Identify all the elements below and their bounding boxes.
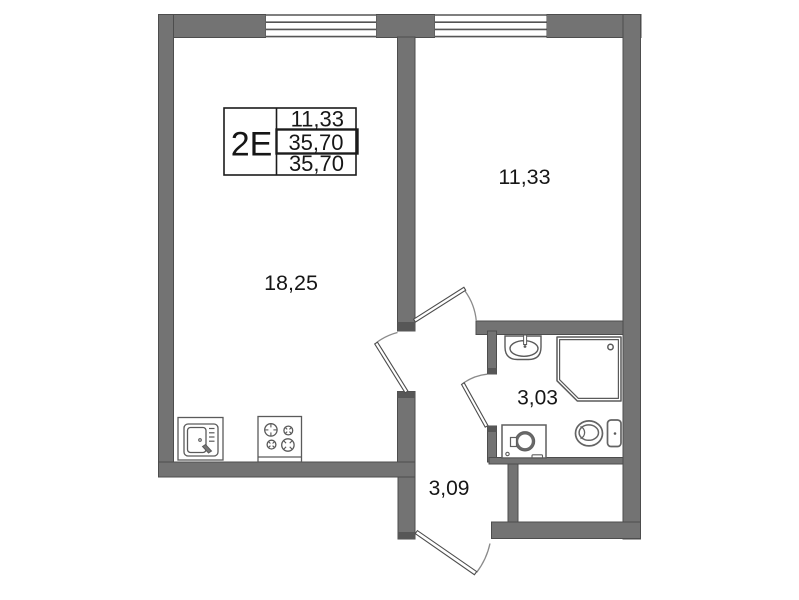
svg-text:18,25: 18,25	[264, 271, 318, 295]
svg-text:35,70: 35,70	[289, 151, 344, 176]
svg-text:3,03: 3,03	[517, 386, 558, 409]
svg-text:3,09: 3,09	[429, 477, 470, 500]
svg-text:11,33: 11,33	[498, 165, 550, 189]
svg-text:11,33: 11,33	[291, 107, 344, 132]
svg-text:2Е: 2Е	[231, 126, 273, 164]
